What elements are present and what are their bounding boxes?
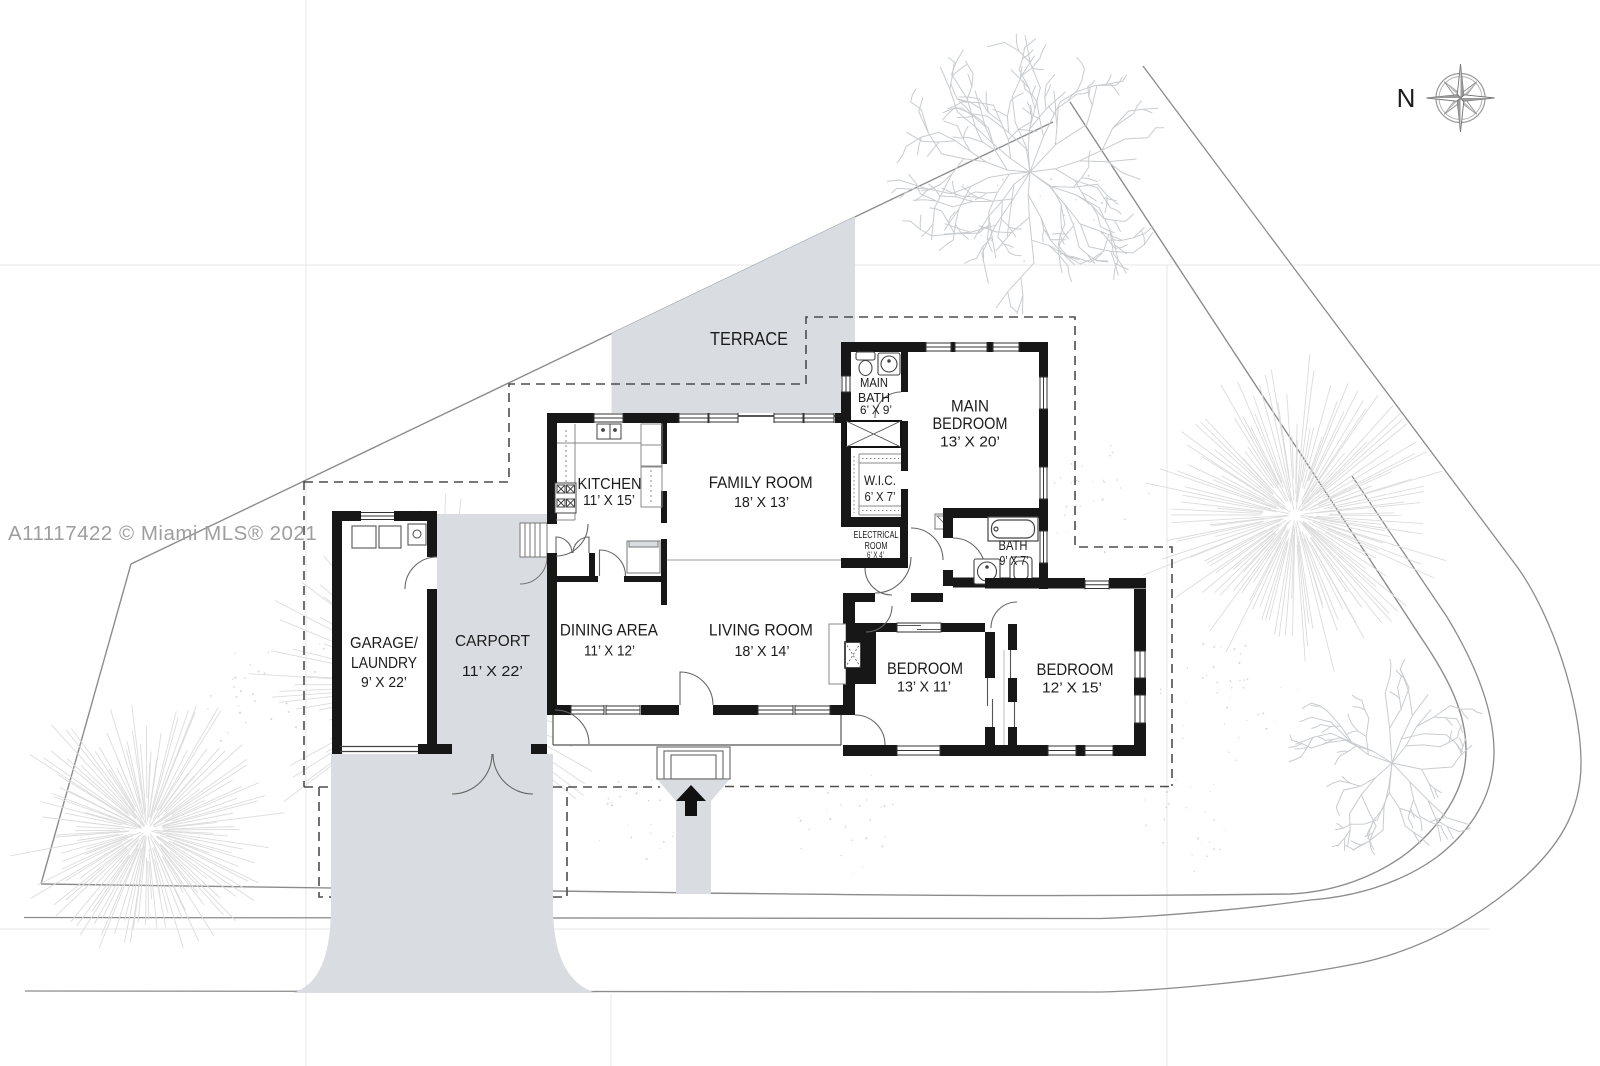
svg-text:A11117422 © Miami MLS® 2021: A11117422 © Miami MLS® 2021 <box>8 522 317 545</box>
svg-text:KITCHEN: KITCHEN <box>578 476 642 493</box>
svg-text:13’ X 20’: 13’ X 20’ <box>940 434 1000 451</box>
svg-text:CARPORT: CARPORT <box>455 633 530 650</box>
svg-text:BEDROOM: BEDROOM <box>933 415 1008 433</box>
svg-text:BATH: BATH <box>999 538 1028 553</box>
svg-text:13’ X 11’: 13’ X 11’ <box>897 679 951 696</box>
svg-text:18’ X 14’: 18’ X 14’ <box>735 643 790 660</box>
svg-text:W.I.C.: W.I.C. <box>864 473 896 488</box>
svg-text:6’ X 7’: 6’ X 7’ <box>865 490 896 504</box>
svg-text:MAIN: MAIN <box>951 398 989 416</box>
svg-text:12’ X 15’: 12’ X 15’ <box>1042 680 1102 697</box>
svg-text:6’ X 4’: 6’ X 4’ <box>867 550 884 561</box>
svg-text:TERRACE: TERRACE <box>710 329 788 349</box>
svg-text:11’ X 12’: 11’ X 12’ <box>584 643 635 660</box>
svg-text:MAIN: MAIN <box>860 375 888 390</box>
svg-text:18’ X 13’: 18’ X 13’ <box>734 494 789 511</box>
svg-text:N: N <box>1397 83 1416 113</box>
svg-text:6’ X 9’: 6’ X 9’ <box>860 403 892 417</box>
svg-text:11’ X 22’: 11’ X 22’ <box>462 663 523 680</box>
svg-text:LAUNDRY: LAUNDRY <box>351 655 417 672</box>
svg-text:11’ X 15’: 11’ X 15’ <box>583 492 635 509</box>
svg-text:LIVING ROOM: LIVING ROOM <box>709 621 813 640</box>
svg-text:DINING AREA: DINING AREA <box>560 621 659 640</box>
svg-text:FAMILY ROOM: FAMILY ROOM <box>709 473 813 492</box>
svg-text:9’ X 22’: 9’ X 22’ <box>361 674 407 691</box>
svg-text:BEDROOM: BEDROOM <box>887 660 963 678</box>
svg-text:BEDROOM: BEDROOM <box>1037 661 1114 679</box>
svg-text:9’ X 7’: 9’ X 7’ <box>1000 553 1029 568</box>
svg-text:GARAGE/: GARAGE/ <box>350 635 419 652</box>
